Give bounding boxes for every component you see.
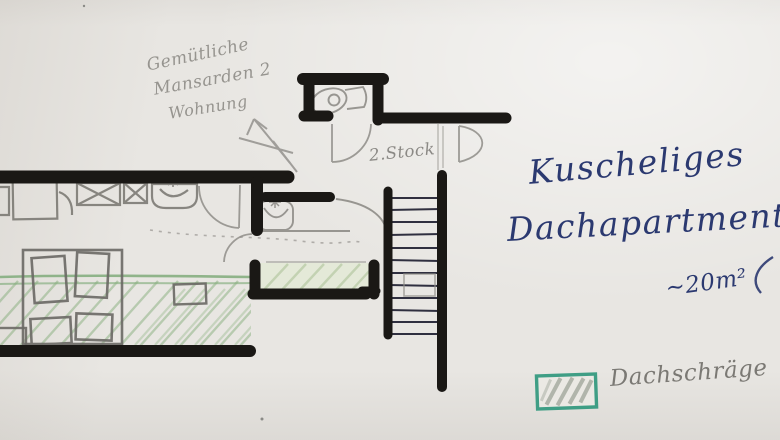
kitchen-door-swing [199, 185, 240, 228]
wc-door-swing [332, 124, 371, 162]
pen-flourish [756, 257, 773, 293]
stair-steps [389, 198, 441, 334]
arrow-annotation [239, 119, 297, 172]
walls [0, 79, 506, 387]
dormer-niche [258, 262, 372, 293]
staircase [389, 198, 441, 334]
legend-swatch [536, 374, 596, 409]
pillow [32, 256, 68, 303]
stairs-top-door-swing [438, 124, 482, 170]
hall-door-swing [224, 234, 252, 262]
floor-plan-sketch: Gemütliche Mansarden 2 Wohnung 2.Stock K… [0, 0, 780, 440]
